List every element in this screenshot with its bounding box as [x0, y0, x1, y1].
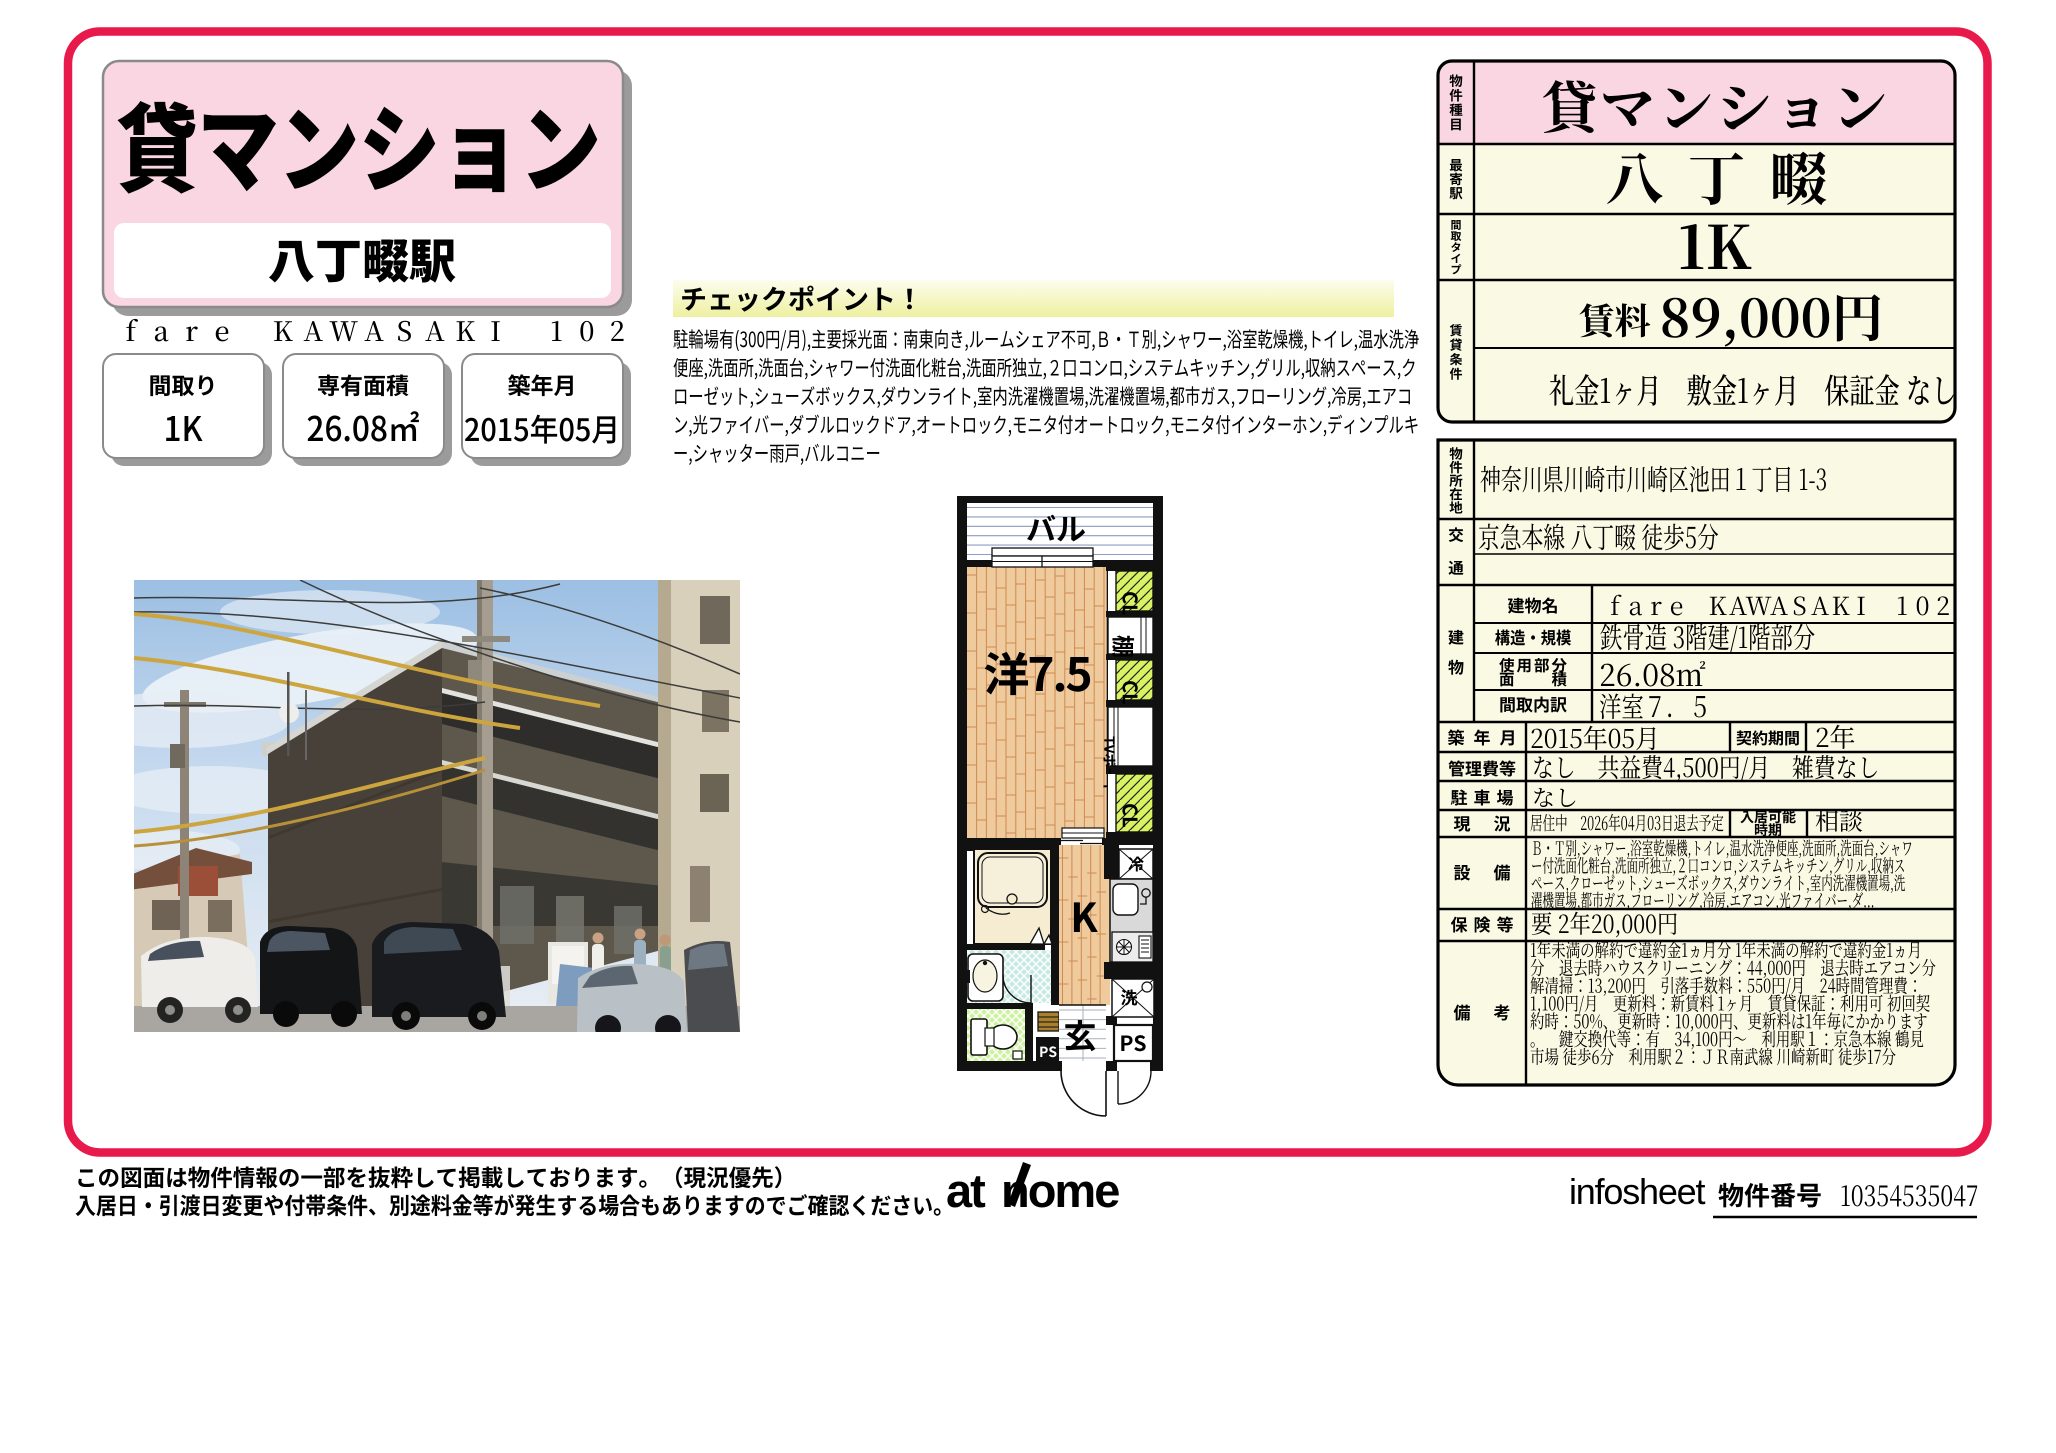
svg-text:at: at — [946, 1164, 986, 1217]
svg-text:infosheet: infosheet — [1569, 1171, 1706, 1212]
